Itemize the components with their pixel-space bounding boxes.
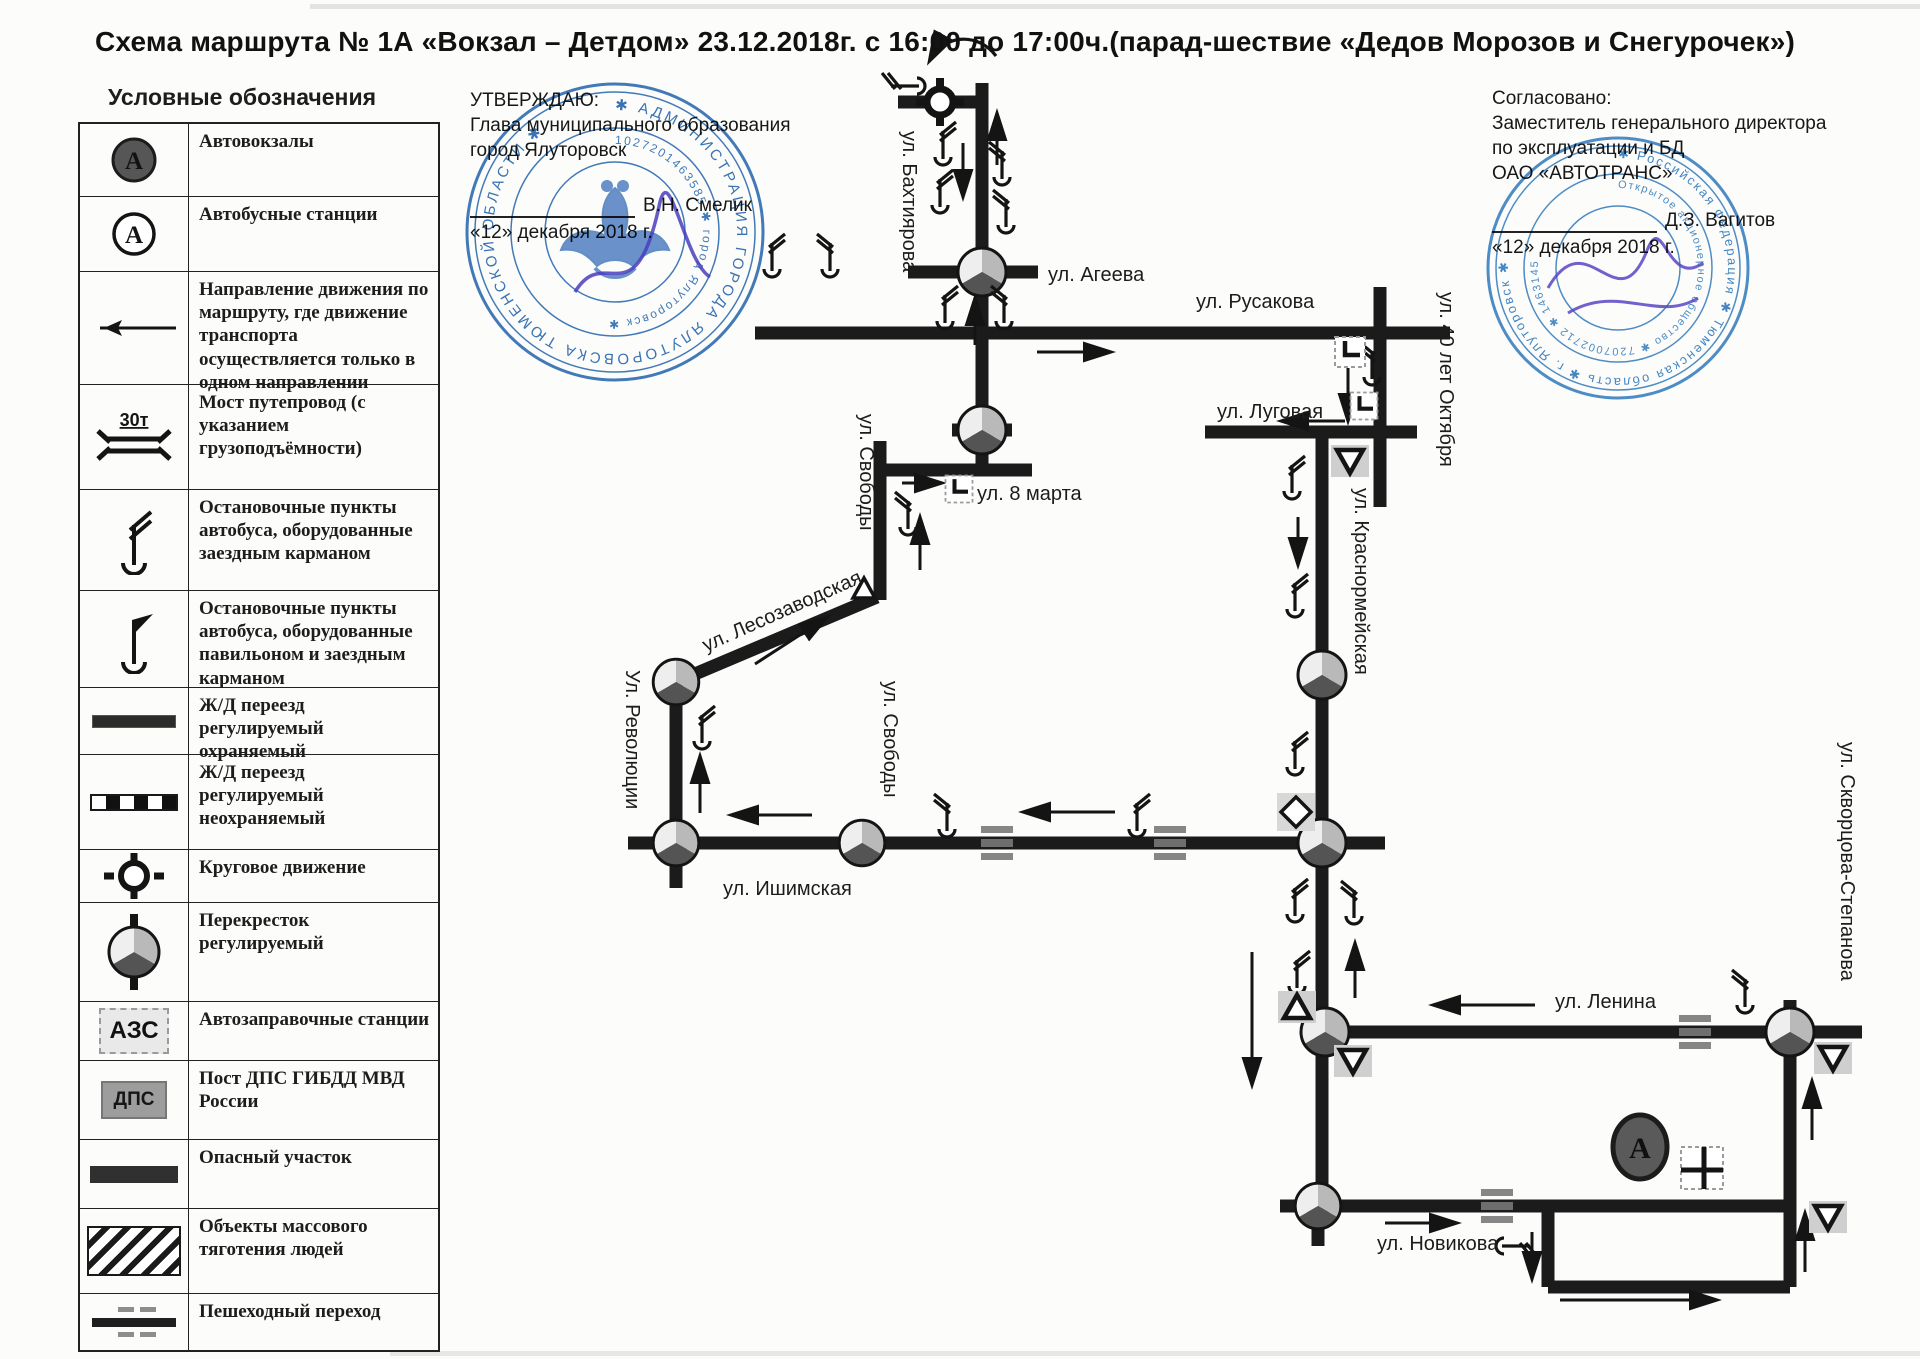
approval-line: УТВЕРЖДАЮ:	[470, 88, 820, 113]
danger-section-icon	[80, 1140, 189, 1208]
legend-label: Мост путепровод (с указанием грузоподъём…	[189, 385, 438, 489]
approval-signature-name: В.Н. Смелик	[643, 193, 752, 218]
legend-label: Перекресток регулируемый	[189, 903, 438, 1001]
legend-label: Пешеходный переход	[189, 1294, 438, 1350]
pedestrian-crossing-icon	[80, 1294, 189, 1350]
bus-terminal-letter: А	[1629, 1132, 1651, 1165]
legend-row: Пешеходный переход	[80, 1294, 438, 1350]
approval-date: «12» декабря 2018 г.	[470, 220, 820, 245]
azs-label: АЗС	[99, 1008, 169, 1054]
intersection-icon-svobody-ishimskaya	[839, 820, 885, 866]
intersection-icon-ageeva	[958, 248, 1006, 296]
legend-row: Опасный участок	[80, 1140, 438, 1209]
street-label-bakhtiyarova: ул. Бахтиярова	[898, 131, 920, 273]
legend-row: ДПС Пост ДПС ГИБДД МВД России	[80, 1061, 438, 1140]
bus-stop-icon	[1287, 574, 1308, 617]
bridge-weight-label: 30т	[120, 410, 149, 430]
bus-stop-icon	[1732, 970, 1753, 1013]
bus-stop-icon	[993, 190, 1014, 233]
bus-stop-icon	[817, 234, 838, 277]
legend-row: Объекты массового тяготения людей	[80, 1209, 438, 1294]
crowd-object-icon	[80, 1209, 189, 1293]
bus-stop-icon	[1341, 881, 1362, 924]
legend-row: Остановочные пункты автобуса, оборудован…	[80, 591, 438, 688]
triangle-marker-icon	[1334, 1045, 1372, 1077]
legend-label: Направление движения по маршруту, где дв…	[189, 272, 438, 384]
signature-line	[1492, 230, 1657, 233]
street-label-ageeva: ул. Агеева	[1048, 264, 1145, 286]
legend-row: Круговое движение	[80, 850, 438, 903]
triangle-marker-icon	[1809, 1201, 1847, 1233]
street-label-rusakova: ул. Русакова	[1196, 291, 1315, 313]
legend-row: Остановочные пункты автобуса, оборудован…	[80, 490, 438, 591]
street-label-revolyucii: Ул. Революции	[621, 670, 643, 809]
fuel-station-icon: АЗС	[80, 1002, 189, 1060]
agreement-signature-name: Д.З. Вагитов	[1665, 208, 1775, 233]
approval-block: УТВЕРЖДАЮ: Глава муниципального образова…	[470, 88, 820, 245]
bus-station-icon: А	[80, 197, 189, 271]
intersection-icon-revolyucii-lesozavodskaya	[653, 659, 699, 705]
legend-label: Автобусные станции	[189, 197, 438, 271]
legend-label: Автозаправочные станции	[189, 1002, 438, 1060]
roundabout-icon	[916, 78, 964, 126]
legend-row: Перекресток регулируемый	[80, 903, 438, 1002]
roundabout-icon	[80, 850, 189, 902]
legend-row: А Автобусные станции	[80, 197, 438, 272]
building-window-icon	[1681, 1147, 1723, 1189]
street-label-novikova: ул. Новикова	[1377, 1233, 1499, 1255]
street-label-lenina: ул. Ленина	[1555, 991, 1657, 1013]
legend-label: Остановочные пункты автобуса, оборудован…	[189, 591, 438, 687]
legend-row: Ж/Д переезд регулируемый охраняемый	[80, 688, 438, 755]
intersection-icon-krasnoarmeyskaya	[1298, 651, 1346, 699]
railway-crossing-icon	[1335, 337, 1365, 367]
bus-stop-icon	[934, 794, 955, 837]
bus-stop-icon	[932, 170, 953, 213]
intersection-icon-revolyucii-ishimskaya	[653, 820, 699, 866]
signal-intersection-icon	[80, 903, 189, 1001]
street-label-ishimskaya: ул. Ишимская	[723, 878, 852, 900]
street-label-lugovaya: ул. Луговая	[1217, 401, 1323, 423]
police-post-icon: ДПС	[80, 1061, 189, 1139]
street-label-svobody-top: ул. Свободы	[855, 414, 877, 531]
intersection-icon-svobody-top	[958, 406, 1006, 454]
agreement-line: Заместитель генерального директора	[1492, 111, 1892, 136]
legend-table: А Автовокзалы А Автобусные станции Напра…	[78, 122, 440, 1352]
pedestrian-crossing-icon	[981, 826, 1013, 860]
legend-row: 30т Мост путепровод (с указанием грузопо…	[80, 385, 438, 490]
page-title: Схема маршрута № 1А «Вокзал – Детдом» 23…	[95, 26, 1855, 58]
bus-stop-icon	[1284, 456, 1305, 499]
street-label-svobody-bottom: ул. Свободы	[879, 681, 901, 798]
legend-label: Опасный участок	[189, 1140, 438, 1208]
pedestrian-crossing-icon	[1154, 826, 1186, 860]
legend-label: Пост ДПС ГИБДД МВД России	[189, 1061, 438, 1139]
triangle-marker-icon	[1278, 991, 1316, 1023]
legend-label: Ж/Д переезд регулируемый охраняемый	[189, 688, 438, 754]
railway-crossing-icon	[1351, 393, 1378, 420]
bus-stop-icon	[694, 706, 715, 749]
legend-row: Направление движения по маршруту, где дв…	[80, 272, 438, 385]
agreement-date: «12» декабря 2018 г.	[1492, 235, 1892, 260]
bus-stop-icon	[1287, 879, 1308, 922]
dps-label: ДПС	[101, 1081, 167, 1119]
street-label-skvorcova-stepanova: ул. Скворцова-Степанова	[1836, 742, 1858, 982]
bus-stop-icon	[1289, 951, 1310, 994]
bus-stop-icon	[895, 492, 916, 535]
bus-stop-icon	[882, 73, 925, 94]
roads	[628, 83, 1862, 1287]
street-label-40-let-oktyabrya: ул. 40 лет Октября	[1435, 292, 1457, 467]
railway-crossing-icon	[946, 476, 973, 503]
agreement-block: Согласовано: Заместитель генерального ди…	[1492, 86, 1892, 260]
legend-label: Автовокзалы	[189, 124, 438, 196]
agreement-line: Согласовано:	[1492, 86, 1892, 111]
street-label-8-marta: ул. 8 марта	[977, 483, 1083, 505]
approval-line: город Ялуторовск	[470, 138, 820, 163]
legend-row: Ж/Д переезд регулируемый неохраняемый	[80, 755, 438, 850]
bus-terminal-icon: А	[1613, 1115, 1667, 1179]
intersection-icon-lenina-skvorcova	[1766, 1008, 1814, 1056]
legend-label: Объекты массового тяготения людей	[189, 1209, 438, 1293]
bus-terminal-letter: А	[125, 148, 143, 175]
legend-header: Условные обозначения	[108, 84, 376, 111]
agreement-line: по эксплуатации и БД	[1492, 136, 1892, 161]
bus-terminal-icon: А	[80, 124, 189, 196]
bus-stop-icon	[937, 286, 958, 329]
street-label-krasnoarmeyskaya: ул. Краснормейская	[1350, 488, 1372, 675]
bus-stop-icon	[1129, 794, 1150, 837]
bridge-icon: 30т	[80, 385, 189, 489]
direction-arrow-icon	[80, 272, 189, 384]
pedestrian-crossing-icon	[1481, 1189, 1513, 1223]
railway-crossing-guarded-icon	[80, 688, 189, 754]
railway-crossing-unguarded-icon	[80, 755, 189, 849]
legend-label: Остановочные пункты автобуса, оборудован…	[189, 490, 438, 590]
bus-stop-pavilion-icon	[80, 591, 189, 687]
legend-row: А Автовокзалы	[80, 124, 438, 197]
bus-stop-icon	[1287, 732, 1308, 775]
pedestrian-crossing-icon	[1679, 1015, 1711, 1049]
triangle-marker-icon	[1814, 1042, 1852, 1074]
bus-station-letter: А	[125, 222, 143, 249]
bus-stop-icon	[935, 122, 956, 165]
legend-row: АЗС Автозаправочные станции	[80, 1002, 438, 1061]
signature-line	[470, 215, 635, 218]
bus-stop-icon	[989, 142, 1010, 185]
legend-label: Круговое движение	[189, 850, 438, 902]
legend-label: Ж/Д переезд регулируемый неохраняемый	[189, 755, 438, 849]
intersection-icon-novikova	[1295, 1183, 1341, 1229]
triangle-marker-icon	[1331, 445, 1369, 477]
agreement-line: ОАО «АВТОТРАНС»	[1492, 161, 1892, 186]
approval-line: Глава муниципального образования	[470, 113, 820, 138]
diamond-marker-icon	[1277, 793, 1315, 831]
bus-stop-icon	[80, 490, 189, 590]
